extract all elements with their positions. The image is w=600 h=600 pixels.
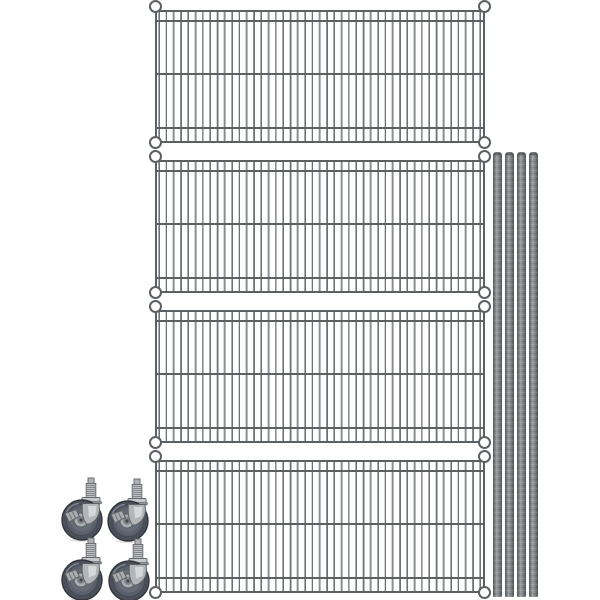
shelf-support-wire-middle — [157, 523, 483, 525]
shelf-frame — [155, 10, 485, 143]
swivel-caster — [105, 537, 155, 600]
corner-collar-icon — [478, 586, 491, 599]
shelving-post — [505, 152, 514, 597]
corner-collar-icon — [149, 300, 162, 313]
corner-collar-icon — [478, 436, 491, 449]
shelf-frame — [155, 460, 485, 593]
shelf-edge-wire-top — [157, 470, 483, 472]
shelf-edge-wire-bottom — [157, 127, 483, 129]
wire-shelf — [149, 150, 491, 299]
corner-collar-icon — [478, 286, 491, 299]
corner-collar-icon — [149, 0, 162, 13]
shelf-edge-wire-top — [157, 320, 483, 322]
wire-shelf — [149, 450, 491, 599]
corner-collar-icon — [149, 136, 162, 149]
caster-wheel-icon — [58, 536, 108, 600]
corner-collar-icon — [149, 150, 162, 163]
swivel-caster — [58, 536, 108, 600]
corner-collar-icon — [149, 286, 162, 299]
shelf-edge-wire-bottom — [157, 577, 483, 579]
product-image-wire-shelving-kit — [0, 0, 600, 600]
swivel-caster — [104, 477, 154, 543]
corner-collar-icon — [478, 300, 491, 313]
corner-collar-icon — [478, 136, 491, 149]
shelf-support-wire-middle — [157, 73, 483, 75]
shelf-edge-wire-top — [157, 170, 483, 172]
caster-wheel-icon — [58, 476, 108, 542]
wire-shelf — [149, 300, 491, 449]
corner-collar-icon — [149, 436, 162, 449]
corner-collar-icon — [149, 450, 162, 463]
swivel-caster — [58, 476, 108, 542]
corner-collar-icon — [478, 450, 491, 463]
shelf-frame — [155, 160, 485, 293]
shelving-post — [517, 152, 526, 597]
caster-wheel-icon — [105, 537, 155, 600]
shelving-post — [493, 152, 502, 597]
corner-collar-icon — [149, 586, 162, 599]
wire-shelf — [149, 0, 491, 149]
shelf-support-wire-middle — [157, 373, 483, 375]
shelf-frame — [155, 310, 485, 443]
corner-collar-icon — [478, 0, 491, 13]
shelf-edge-wire-top — [157, 20, 483, 22]
shelf-edge-wire-bottom — [157, 277, 483, 279]
shelf-support-wire-middle — [157, 223, 483, 225]
caster-wheel-icon — [104, 477, 154, 543]
shelving-post — [529, 152, 538, 597]
corner-collar-icon — [478, 150, 491, 163]
shelf-edge-wire-bottom — [157, 427, 483, 429]
